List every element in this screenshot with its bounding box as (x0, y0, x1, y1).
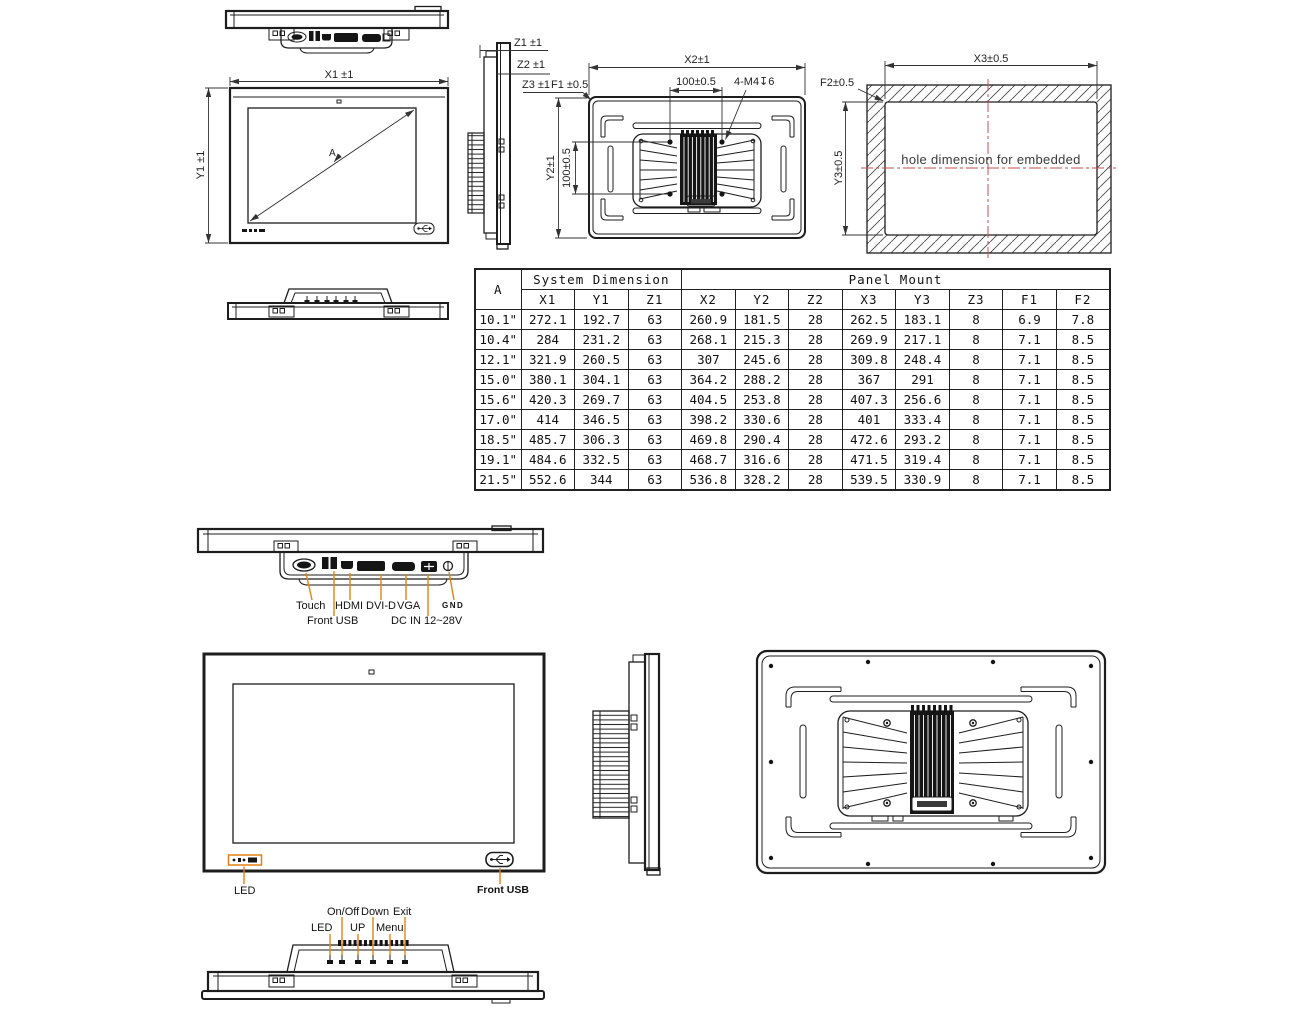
label-menu: Menu (376, 922, 404, 934)
value-cell: 288.2 (735, 370, 789, 390)
value-cell: 63 (628, 390, 682, 410)
size-cell: 17.0" (475, 410, 521, 430)
value-cell: 8.5 (1056, 390, 1110, 410)
value-cell: 28 (789, 470, 843, 491)
vesa-hole (719, 139, 724, 144)
dimension-table: A System Dimension Panel Mount X1Y1Z1X2Y… (474, 268, 1111, 491)
dim-y1: Y1 ±1 (195, 151, 207, 180)
heatsink-side-large (593, 711, 629, 818)
value-cell: 364.2 (682, 370, 736, 390)
led-strip (229, 855, 262, 865)
vesa-hole (667, 191, 672, 196)
value-cell: 63 (628, 410, 682, 430)
value-cell: 28 (789, 330, 843, 350)
value-cell: 215.3 (735, 330, 789, 350)
value-cell: 63 (628, 470, 682, 491)
value-cell: 8 (949, 410, 1003, 430)
value-cell: 28 (789, 410, 843, 430)
value-cell: 333.4 (896, 410, 950, 430)
screen-area-large (233, 684, 514, 843)
value-cell: 293.2 (896, 430, 950, 450)
table-row: 15.0"380.1304.163364.2288.22836729187.18… (475, 370, 1110, 390)
column-header: Z1 (628, 290, 682, 310)
value-cell: 398.2 (682, 410, 736, 430)
value-cell: 63 (628, 310, 682, 330)
vesa-hole (719, 191, 724, 196)
value-cell: 7.1 (1003, 450, 1057, 470)
value-cell: 231.2 (575, 330, 629, 350)
table-row: 12.1"321.9260.563307245.628309.8248.487.… (475, 350, 1110, 370)
vga-port (392, 562, 415, 571)
heatsink-center (680, 134, 717, 205)
value-cell: 63 (628, 430, 682, 450)
dim-z1: Z1 ±1 (514, 37, 542, 49)
front-usb-port (486, 853, 513, 867)
usb-icon (414, 223, 434, 234)
webcam-dot (337, 100, 341, 103)
label-on-off: On/Off (327, 906, 359, 918)
label-exit: Exit (393, 906, 411, 918)
size-cell: 12.1" (475, 350, 521, 370)
dim-z3: Z3 ±1 (522, 79, 550, 91)
value-cell: 8.5 (1056, 470, 1110, 491)
value-cell: 484.6 (521, 450, 575, 470)
table-row: 10.4"284231.263268.1215.328269.9217.187.… (475, 330, 1110, 350)
value-cell: 269.9 (842, 330, 896, 350)
value-cell: 253.8 (735, 390, 789, 410)
value-cell: 63 (628, 330, 682, 350)
value-cell: 7.1 (1003, 410, 1057, 430)
fins-right-large (959, 717, 1023, 809)
value-cell: 367 (842, 370, 896, 390)
value-cell: 7.1 (1003, 350, 1057, 370)
column-header: Y3 (896, 290, 950, 310)
osd-bottom-view (202, 917, 544, 1003)
value-cell: 8 (949, 390, 1003, 410)
gnd-screw (444, 562, 453, 571)
value-cell: 272.1 (521, 310, 575, 330)
value-cell: 7.1 (1003, 370, 1057, 390)
value-cell: 330.9 (896, 470, 950, 491)
osd-buttons (327, 953, 408, 964)
value-cell: 332.5 (575, 450, 629, 470)
table-row: 21.5"552.634463536.8328.228539.5330.987.… (475, 470, 1110, 491)
value-cell: 471.5 (842, 450, 896, 470)
size-cell: 21.5" (475, 470, 521, 491)
value-cell: 7.8 (1056, 310, 1110, 330)
size-cell: 18.5" (475, 430, 521, 450)
front-view-large (204, 654, 544, 884)
value-cell: 8 (949, 470, 1003, 491)
value-cell: 304.1 (575, 370, 629, 390)
touch-port (293, 559, 315, 571)
table-row: 10.1"272.1192.763260.9181.528262.5183.18… (475, 310, 1110, 330)
value-cell: 8.5 (1056, 330, 1110, 350)
value-cell: 192.7 (575, 310, 629, 330)
fins-left (640, 140, 677, 199)
value-cell: 8.5 (1056, 430, 1110, 450)
column-header: Z3 (949, 290, 1003, 310)
column-header: X2 (682, 290, 736, 310)
value-cell: 7.1 (1003, 470, 1057, 491)
value-cell: 407.3 (842, 390, 896, 410)
drawing-sheet: X1 ±1 Y1 ±1 A Z1 ±1 Z2 ±1 Z3 ±1 F1 ±0.5 … (0, 0, 1305, 1026)
value-cell: 28 (789, 390, 843, 410)
size-cell: 19.1" (475, 450, 521, 470)
value-cell: 319.4 (896, 450, 950, 470)
fins-right (717, 140, 754, 199)
value-cell: 306.3 (575, 430, 629, 450)
value-cell: 28 (789, 450, 843, 470)
value-cell: 8.5 (1056, 350, 1110, 370)
table-row: 15.6"420.3269.763404.5253.828407.3256.68… (475, 390, 1110, 410)
value-cell: 485.7 (521, 430, 575, 450)
label-front-usb: Front USB (477, 885, 529, 897)
value-cell: 414 (521, 410, 575, 430)
value-cell: 346.5 (575, 410, 629, 430)
value-cell: 183.1 (896, 310, 950, 330)
value-cell: 260.9 (682, 310, 736, 330)
value-cell: 7.1 (1003, 390, 1057, 410)
value-cell: 7.1 (1003, 430, 1057, 450)
value-cell: 28 (789, 310, 843, 330)
column-header: Z2 (789, 290, 843, 310)
value-cell: 268.1 (682, 330, 736, 350)
value-cell: 245.6 (735, 350, 789, 370)
column-header: Y2 (735, 290, 789, 310)
dim-x1: X1 ±1 (325, 69, 354, 81)
value-cell: 291 (896, 370, 950, 390)
value-cell: 63 (628, 450, 682, 470)
label-up: UP (350, 922, 365, 934)
value-cell: 290.4 (735, 430, 789, 450)
value-cell: 217.1 (896, 330, 950, 350)
side-view-large (593, 654, 660, 875)
table-row: 18.5"485.7306.363469.8290.428472.6293.28… (475, 430, 1110, 450)
value-cell: 248.4 (896, 350, 950, 370)
dim-z2: Z2 ±1 (517, 59, 545, 71)
side-view-small (468, 43, 591, 249)
table-row: 17.0"414346.563398.2330.628401333.487.18… (475, 410, 1110, 430)
label-led: LED (234, 885, 255, 897)
label-dvi-d: DVI-D (366, 600, 396, 612)
value-cell: 284 (521, 330, 575, 350)
table-row: 19.1"484.6332.563468.7316.628471.5319.48… (475, 450, 1110, 470)
value-cell: 307 (682, 350, 736, 370)
dim-f2: F2±0.5 (820, 77, 854, 89)
value-cell: 8.5 (1056, 450, 1110, 470)
dc-in-jack (421, 561, 437, 572)
label-vga: VGA (397, 600, 420, 612)
size-cell: 10.1" (475, 310, 521, 330)
label-osd-led: LED (311, 922, 332, 934)
value-cell: 420.3 (521, 390, 575, 410)
size-cell: 15.6" (475, 390, 521, 410)
diagonal-size-line (250, 110, 414, 221)
value-cell: 8 (949, 450, 1003, 470)
value-cell: 28 (789, 370, 843, 390)
value-cell: 330.6 (735, 410, 789, 430)
value-cell: 28 (789, 350, 843, 370)
value-cell: 8.5 (1056, 410, 1110, 430)
dim-x2: X2±1 (684, 54, 710, 66)
value-cell: 539.5 (842, 470, 896, 491)
value-cell: 260.5 (575, 350, 629, 370)
header-a: A (475, 269, 521, 310)
label-touch: Touch (296, 600, 325, 612)
value-cell: 63 (628, 350, 682, 370)
table-subheader-row: X1Y1Z1X2Y2Z2X3Y3Z3F1F2 (475, 290, 1110, 310)
value-cell: 8 (949, 430, 1003, 450)
dim-vesa-y: 100±0.5 (561, 148, 573, 188)
value-cell: 472.6 (842, 430, 896, 450)
value-cell: 256.6 (896, 390, 950, 410)
label-down: Down (361, 906, 389, 918)
front-view-small (205, 77, 448, 243)
usb-port (322, 557, 329, 569)
column-header: X3 (842, 290, 896, 310)
value-cell: 8 (949, 350, 1003, 370)
value-cell: 404.5 (682, 390, 736, 410)
dim-f1: F1 ±0.5 (551, 79, 588, 91)
hole-caption: hole dimension for embedded (901, 153, 1080, 167)
fins-left-large (843, 717, 907, 809)
rear-view-small (555, 63, 805, 238)
label-hdmi: HDMI (335, 600, 363, 612)
heatsink-side (468, 133, 484, 213)
dim-thread: 4-M4↧6 (734, 76, 774, 88)
value-cell: 321.9 (521, 350, 575, 370)
dim-y2: Y2±1 (545, 155, 557, 181)
dvi-port (357, 561, 385, 571)
header-panel-mount: Panel Mount (682, 269, 1110, 290)
value-cell: 262.5 (842, 310, 896, 330)
value-cell: 552.6 (521, 470, 575, 491)
usb-port (331, 557, 338, 569)
value-cell: 469.8 (682, 430, 736, 450)
value-cell: 380.1 (521, 370, 575, 390)
column-header: X1 (521, 290, 575, 310)
value-cell: 8.5 (1056, 370, 1110, 390)
value-cell: 6.9 (1003, 310, 1057, 330)
bottom-view-small (228, 289, 448, 319)
label-gnd: GND (442, 602, 464, 611)
table-header-row: A System Dimension Panel Mount (475, 269, 1110, 290)
value-cell: 401 (842, 410, 896, 430)
value-cell: 63 (628, 370, 682, 390)
dim-y3: Y3±0.5 (833, 151, 845, 186)
vesa-hole (667, 139, 672, 144)
value-cell: 344 (575, 470, 629, 491)
value-cell: 269.7 (575, 390, 629, 410)
osd-buttons-small (305, 296, 358, 303)
value-cell: 181.5 (735, 310, 789, 330)
dim-x3: X3±0.5 (974, 53, 1009, 65)
led-strip-small (242, 229, 247, 232)
value-cell: 316.6 (735, 450, 789, 470)
value-cell: 7.1 (1003, 330, 1057, 350)
label-front-usb-io: Front USB (307, 615, 358, 627)
value-cell: 536.8 (682, 470, 736, 491)
value-cell: 8 (949, 310, 1003, 330)
value-cell: 8 (949, 370, 1003, 390)
rear-view-large (757, 651, 1105, 873)
value-cell: 8 (949, 330, 1003, 350)
value-cell: 468.7 (682, 450, 736, 470)
column-header: F2 (1056, 290, 1110, 310)
column-header: Y1 (575, 290, 629, 310)
size-cell: 15.0" (475, 370, 521, 390)
value-cell: 28 (789, 430, 843, 450)
value-cell: 309.8 (842, 350, 896, 370)
webcam-dot-large (369, 670, 374, 674)
top-bottom-view (226, 7, 448, 54)
label-dc-in: DC IN 12~28V (391, 615, 462, 627)
hdmi-port (341, 561, 353, 569)
size-cell: 10.4" (475, 330, 521, 350)
diagonal-label: A (329, 148, 336, 159)
column-header: F1 (1003, 290, 1057, 310)
header-system-dimension: System Dimension (521, 269, 682, 290)
value-cell: 328.2 (735, 470, 789, 491)
dim-vesa-x: 100±0.5 (676, 76, 716, 88)
